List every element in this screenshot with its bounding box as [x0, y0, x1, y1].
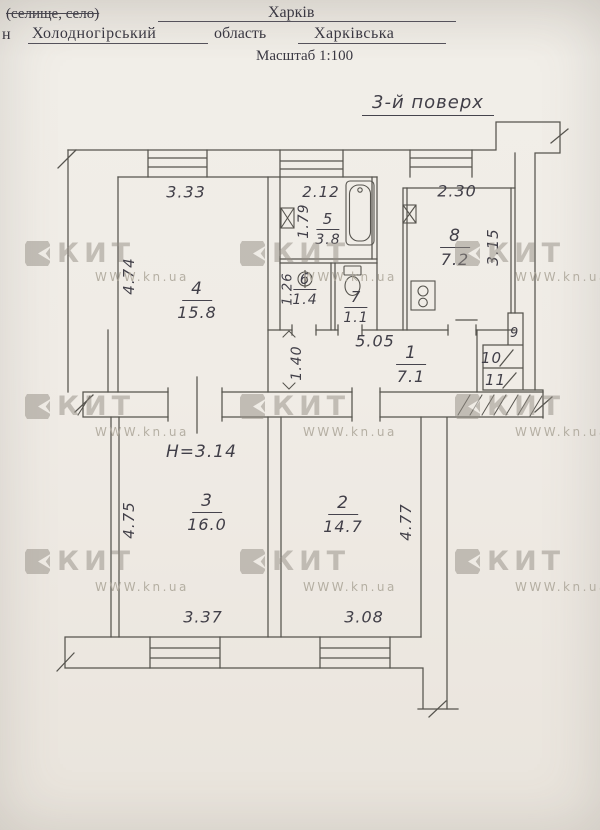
- dim-room5-depth: 1.79: [296, 203, 312, 238]
- kit-watermark-text: КИТ: [272, 238, 350, 269]
- room3-area: 16.0: [187, 513, 227, 534]
- kn-url-watermark: WWW.kn.ua: [303, 425, 397, 439]
- kit-watermark-text: КИТ: [57, 238, 135, 269]
- room3-label: 3 16.0: [187, 491, 227, 534]
- room3-number: 3: [192, 493, 222, 513]
- room1-label: 1 7.1: [396, 343, 426, 386]
- window-room8: [410, 150, 472, 177]
- dim-room2-width: 3.08: [344, 608, 384, 627]
- kit-watermark-text: КИТ: [272, 391, 350, 422]
- room5-number: 5: [317, 212, 340, 230]
- kit-logo-icon: [25, 241, 50, 266]
- window-room5: [280, 150, 343, 177]
- closet9-number: 9: [510, 326, 519, 341]
- room1-number: 1: [396, 345, 426, 365]
- window-room3: [150, 637, 220, 668]
- bathtub-icon: [346, 181, 374, 245]
- room1-area: 7.1: [396, 365, 426, 386]
- dim-hall-width: 1.40: [289, 345, 305, 380]
- kit-watermark: КИТ: [240, 391, 350, 422]
- kit-watermark-text: КИТ: [57, 391, 135, 422]
- room2-label: 2 14.7: [323, 493, 363, 536]
- window-room4: [148, 150, 207, 177]
- kit-watermark-text: КИТ: [272, 546, 350, 577]
- window-room2: [320, 637, 390, 668]
- dim-room5-width: 2.12: [302, 183, 339, 201]
- dim-hall-length: 5.05: [355, 332, 395, 351]
- kit-logo-icon: [240, 394, 265, 419]
- kn-url-watermark: WWW.kn.ua: [303, 580, 397, 594]
- kn-url-watermark: WWW.kn.ua: [95, 425, 189, 439]
- closet11-number: 11: [485, 371, 506, 389]
- room2-number: 2: [328, 495, 358, 515]
- room4-label: 4 15.8: [177, 279, 217, 322]
- room2-area: 14.7: [323, 515, 363, 536]
- kn-url-watermark: WWW.kn.ua: [515, 425, 600, 439]
- kit-watermark: КИТ: [240, 238, 350, 269]
- kit-watermark: КИТ: [25, 391, 135, 422]
- washbasin-icon: [281, 208, 294, 228]
- kn-url-watermark: WWW.kn.ua: [515, 270, 600, 284]
- room3-left-wall: [111, 417, 119, 637]
- ceiling-height-note: H=3.14: [166, 442, 237, 462]
- room2-right-wall: [421, 417, 447, 709]
- dim-room3-depth: 4.75: [120, 501, 138, 538]
- kit-watermark: КИТ: [25, 238, 135, 269]
- kit-logo-icon: [240, 549, 265, 574]
- kit-logo-icon: [455, 241, 480, 266]
- kit-watermark: КИТ: [25, 546, 135, 577]
- kn-url-watermark: WWW.kn.ua: [95, 270, 189, 284]
- kit-logo-icon: [25, 394, 50, 419]
- kit-watermark-text: КИТ: [487, 546, 565, 577]
- dim-room2-depth: 4.77: [397, 503, 415, 540]
- kn-url-watermark: WWW.kn.ua: [515, 580, 600, 594]
- dim-room8-width: 2.30: [437, 182, 477, 201]
- room7-area: 1.1: [343, 308, 368, 326]
- bottom-wall: [65, 637, 458, 709]
- kit-logo-icon: [25, 549, 50, 574]
- kit-watermark-text: КИТ: [487, 391, 565, 422]
- room6-area: 1.4: [292, 290, 317, 308]
- dim-room6-depth: 1.26: [281, 273, 296, 306]
- room4-area: 15.8: [177, 301, 217, 322]
- break-marks: [57, 129, 568, 717]
- room2-3-divider: [268, 417, 281, 637]
- kit-watermark: КИТ: [240, 546, 350, 577]
- kit-logo-icon: [455, 394, 480, 419]
- room7-label: 7 1.1: [343, 287, 368, 326]
- kn-url-watermark: WWW.kn.ua: [95, 580, 189, 594]
- stove-icon: [411, 281, 435, 310]
- kn-url-watermark: WWW.kn.ua: [303, 270, 397, 284]
- kit-logo-icon: [240, 241, 265, 266]
- kit-logo-icon: [455, 549, 480, 574]
- room7-number: 7: [345, 290, 368, 308]
- dim-room3-width: 3.37: [183, 608, 223, 627]
- kit-watermark: КИТ: [455, 546, 565, 577]
- kit-watermark-text: КИТ: [487, 238, 565, 269]
- dim-room4-width: 3.33: [166, 183, 206, 202]
- kitchen-sink-icon: [403, 205, 416, 223]
- kit-watermark: КИТ: [455, 238, 565, 269]
- closet10-number: 10: [481, 349, 502, 367]
- kit-watermark: КИТ: [455, 391, 565, 422]
- kit-watermark-text: КИТ: [57, 546, 135, 577]
